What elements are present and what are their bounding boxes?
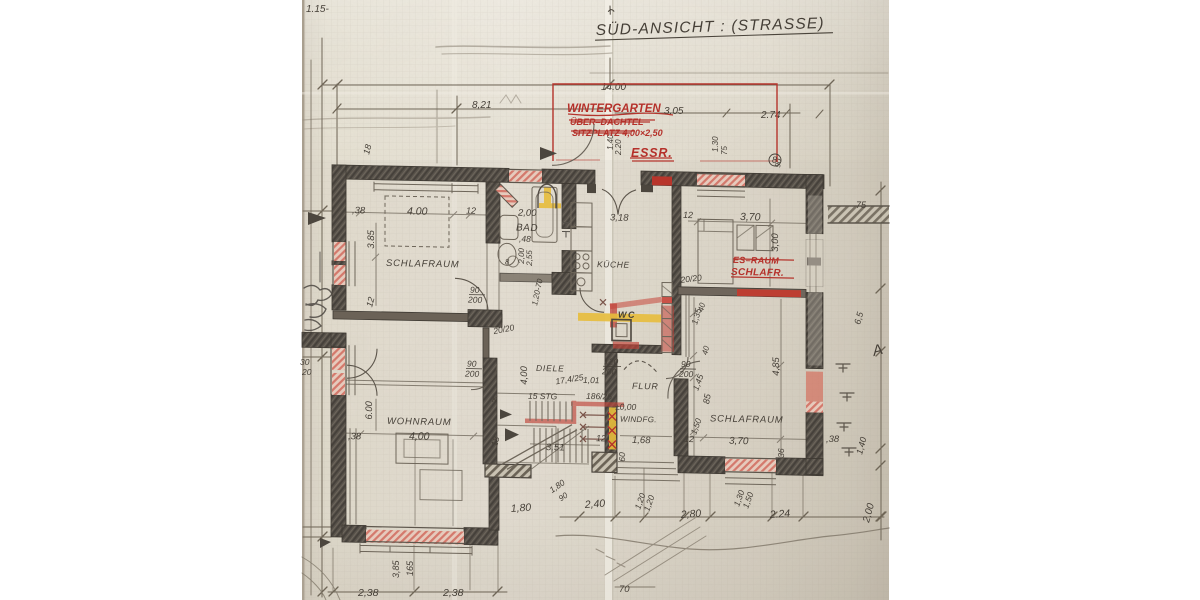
svg-text:2,55: 2,55 xyxy=(525,250,534,267)
svg-text:12: 12 xyxy=(683,210,693,220)
svg-text:K: K xyxy=(492,395,498,404)
svg-text:,38: ,38 xyxy=(826,434,840,445)
svg-text:165: 165 xyxy=(405,560,415,576)
svg-text:4,00: 4,00 xyxy=(519,365,530,384)
svg-text:8,21: 8,21 xyxy=(472,100,491,111)
svg-text:3,70: 3,70 xyxy=(740,211,761,223)
svg-text:3,00: 3,00 xyxy=(770,232,781,251)
svg-text:WOHNRAUM: WOHNRAUM xyxy=(387,416,451,428)
svg-text:DIELE: DIELE xyxy=(536,363,565,374)
svg-text:3.85: 3.85 xyxy=(366,229,377,248)
svg-text:75: 75 xyxy=(720,146,729,155)
svg-text:186/25: 186/25 xyxy=(586,391,612,402)
svg-text:,38: ,38 xyxy=(348,431,362,442)
svg-text:200: 200 xyxy=(464,368,479,378)
svg-text:2.24: 2.24 xyxy=(768,508,790,521)
svg-text:3,05: 3,05 xyxy=(664,106,684,117)
svg-text:15 STG: 15 STG xyxy=(528,391,558,402)
svg-text:2,38: 2,38 xyxy=(442,587,464,599)
svg-text:36: 36 xyxy=(776,448,786,458)
svg-text:,48: ,48 xyxy=(519,234,531,244)
svg-text:4,85: 4,85 xyxy=(771,356,782,375)
svg-text:90: 90 xyxy=(681,359,691,369)
svg-text:3,51: 3,51 xyxy=(546,442,564,453)
svg-text:30: 30 xyxy=(300,357,310,367)
svg-text:WC: WC xyxy=(618,310,636,320)
svg-text:200: 200 xyxy=(601,366,616,376)
svg-text:SCHLAFRAUM: SCHLAFRAUM xyxy=(386,258,459,270)
svg-text:90: 90 xyxy=(470,285,480,295)
svg-text:200: 200 xyxy=(467,295,482,305)
svg-text:WINDFG.: WINDFG. xyxy=(620,415,657,425)
svg-text:1.30: 1.30 xyxy=(711,136,720,152)
svg-text:3,70: 3,70 xyxy=(729,436,749,447)
svg-text:2,00: 2,00 xyxy=(517,208,537,219)
svg-text:BAD: BAD xyxy=(516,223,538,234)
svg-text:12: 12 xyxy=(684,434,694,444)
svg-text:1.15-: 1.15- xyxy=(306,4,329,15)
svg-text:1,68: 1,68 xyxy=(632,435,651,446)
svg-text:60: 60 xyxy=(617,452,627,462)
svg-text:1,01: 1,01 xyxy=(583,375,600,385)
svg-text:12: 12 xyxy=(596,433,606,443)
svg-text:120: 120 xyxy=(604,356,618,366)
svg-text:2.74: 2.74 xyxy=(760,110,781,121)
svg-text:6.00: 6.00 xyxy=(364,400,375,419)
svg-text:1,80: 1,80 xyxy=(510,502,531,515)
svg-text:200: 200 xyxy=(678,369,693,379)
svg-text:4,00: 4,00 xyxy=(409,430,430,442)
svg-text:ES–RAUM: ES–RAUM xyxy=(733,255,779,266)
svg-text:75: 75 xyxy=(856,200,867,210)
svg-text:±0,00: ±0,00 xyxy=(615,402,636,412)
svg-text:90: 90 xyxy=(467,359,477,369)
svg-text:2.20: 2.20 xyxy=(614,139,623,156)
svg-text:2,38: 2,38 xyxy=(357,587,379,599)
svg-text:FLUR: FLUR xyxy=(632,381,659,392)
svg-text:2,80: 2,80 xyxy=(679,508,701,521)
svg-text:20: 20 xyxy=(301,367,312,377)
svg-text:12: 12 xyxy=(466,206,476,216)
svg-text:,38: ,38 xyxy=(352,205,366,216)
svg-text:4.00: 4.00 xyxy=(407,205,428,217)
svg-text:KÜCHE: KÜCHE xyxy=(597,259,630,270)
svg-text:3,18: 3,18 xyxy=(610,212,629,223)
svg-text:2,40: 2,40 xyxy=(583,498,605,511)
svg-text:SCHLAFRAUM: SCHLAFRAUM xyxy=(710,413,783,425)
svg-text:70: 70 xyxy=(619,584,630,595)
svg-text:3,85: 3,85 xyxy=(391,559,401,578)
svg-text:8: 8 xyxy=(772,155,777,165)
